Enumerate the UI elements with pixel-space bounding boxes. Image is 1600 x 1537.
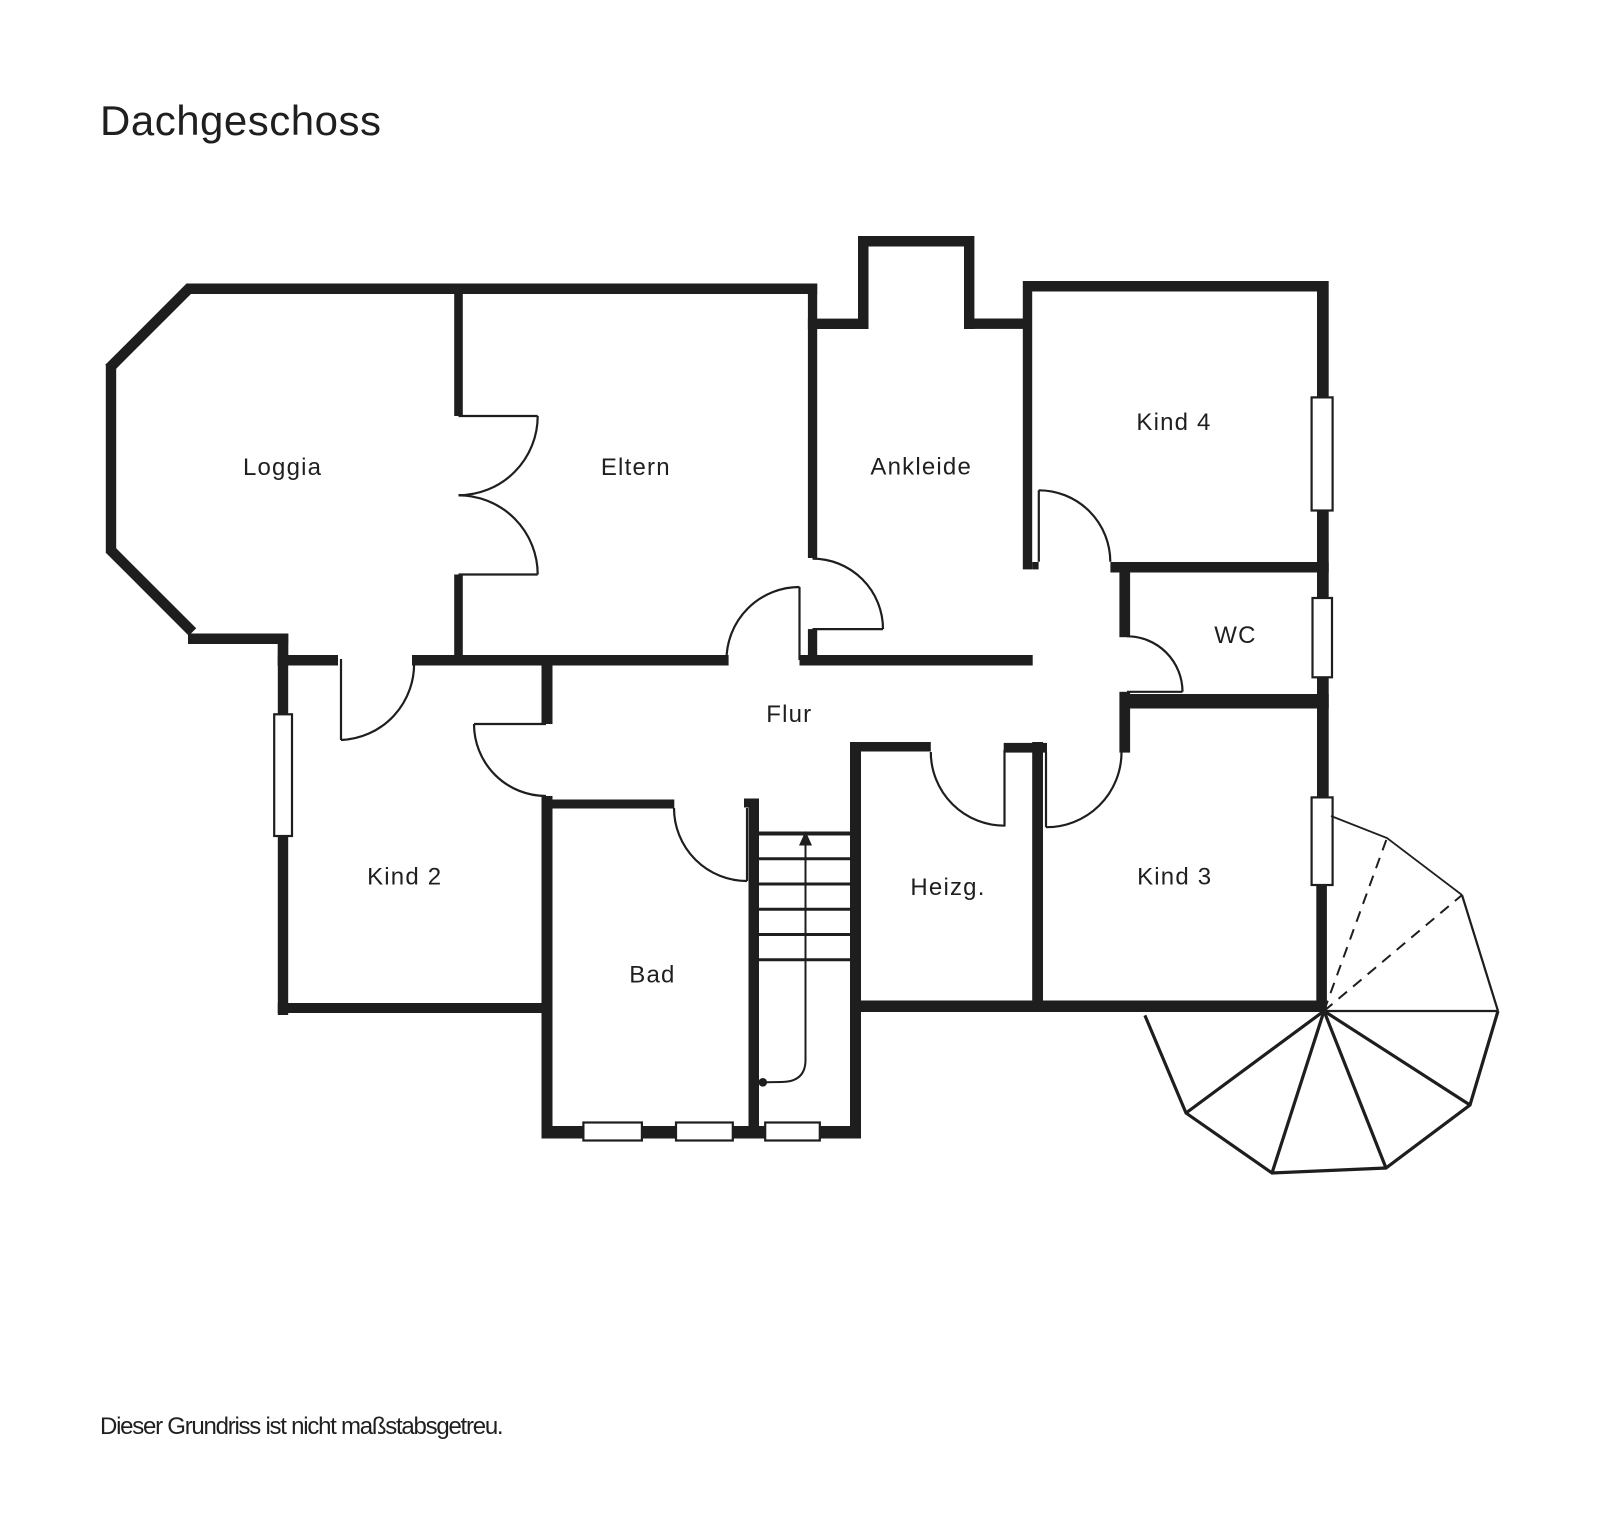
svg-text:Eltern: Eltern [601,454,671,481]
svg-text:WC: WC [1214,622,1256,649]
svg-text:Kind 3: Kind 3 [1137,864,1212,891]
svg-text:Kind 4: Kind 4 [1136,409,1211,436]
svg-text:Bad: Bad [629,962,675,989]
svg-text:Flur: Flur [766,701,812,728]
svg-text:Heizg.: Heizg. [910,874,985,901]
svg-text:Loggia: Loggia [243,454,322,481]
svg-text:Dieser Grundriss ist nicht maß: Dieser Grundriss ist nicht maßstabsgetre… [100,1413,502,1440]
svg-text:Kind 2: Kind 2 [367,864,442,891]
svg-text:Dachgeschoss: Dachgeschoss [100,97,381,144]
svg-text:Ankleide: Ankleide [870,454,972,481]
